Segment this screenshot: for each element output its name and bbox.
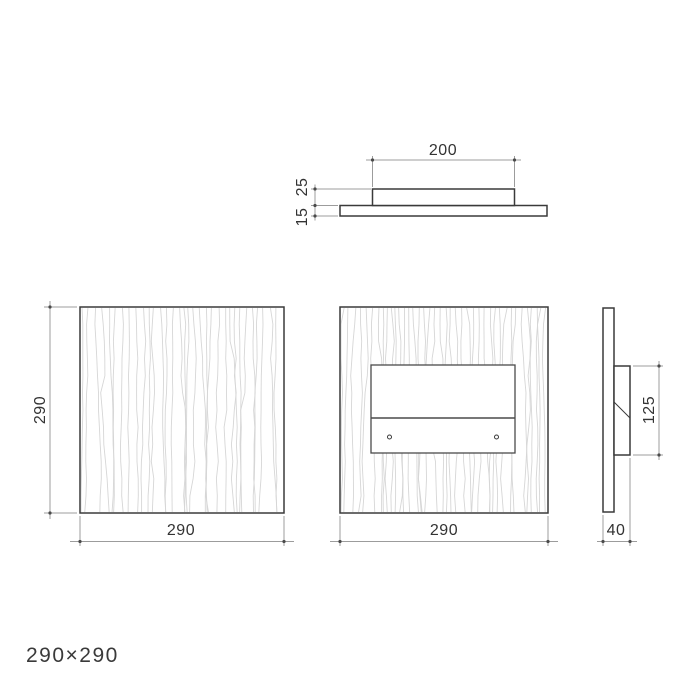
back-view [330, 307, 558, 546]
side-panel-outline [603, 308, 614, 512]
dimension-tick [313, 187, 316, 190]
dimension-tick [48, 305, 51, 308]
dimension-tick [628, 540, 631, 543]
dim-label-top-width: 200 [429, 143, 457, 159]
dimension-tick [601, 540, 604, 543]
dimension-tick [657, 453, 660, 456]
screw-hole-right [495, 435, 499, 439]
product-size-label: 290×290 [26, 643, 119, 668]
section-panel-outline [340, 206, 547, 217]
section-bracket-outline [373, 189, 515, 206]
mounting-plate-outline [371, 365, 515, 453]
front-view [44, 301, 294, 546]
dimension-tick [371, 158, 374, 161]
top-section-view [311, 156, 547, 221]
dimension-tick [282, 540, 285, 543]
dim-label-depth: 40 [607, 523, 626, 539]
dim-label-bracket-thickness: 25 [295, 178, 311, 197]
dim-label-panel-thickness: 15 [295, 208, 311, 227]
dimension-tick [513, 158, 516, 161]
dimension-tick [546, 540, 549, 543]
technical-drawing-canvas: 200 25 15 290 290 290 125 40 290×290 [0, 0, 700, 700]
dim-label-front-height: 290 [33, 396, 49, 424]
dimension-tick [338, 540, 341, 543]
dimension-tick [313, 204, 316, 207]
side-view [597, 308, 663, 546]
dim-label-back-width: 290 [430, 523, 458, 539]
dimension-tick [48, 511, 51, 514]
drawing-svg [0, 0, 700, 700]
dimension-tick [657, 364, 660, 367]
dim-200-lines [366, 156, 521, 187]
dimension-tick [78, 540, 81, 543]
dimension-tick [313, 214, 316, 217]
dim-label-bracket-height: 125 [642, 396, 658, 424]
dim-label-front-width: 290 [167, 523, 195, 539]
screw-hole-left [388, 435, 392, 439]
